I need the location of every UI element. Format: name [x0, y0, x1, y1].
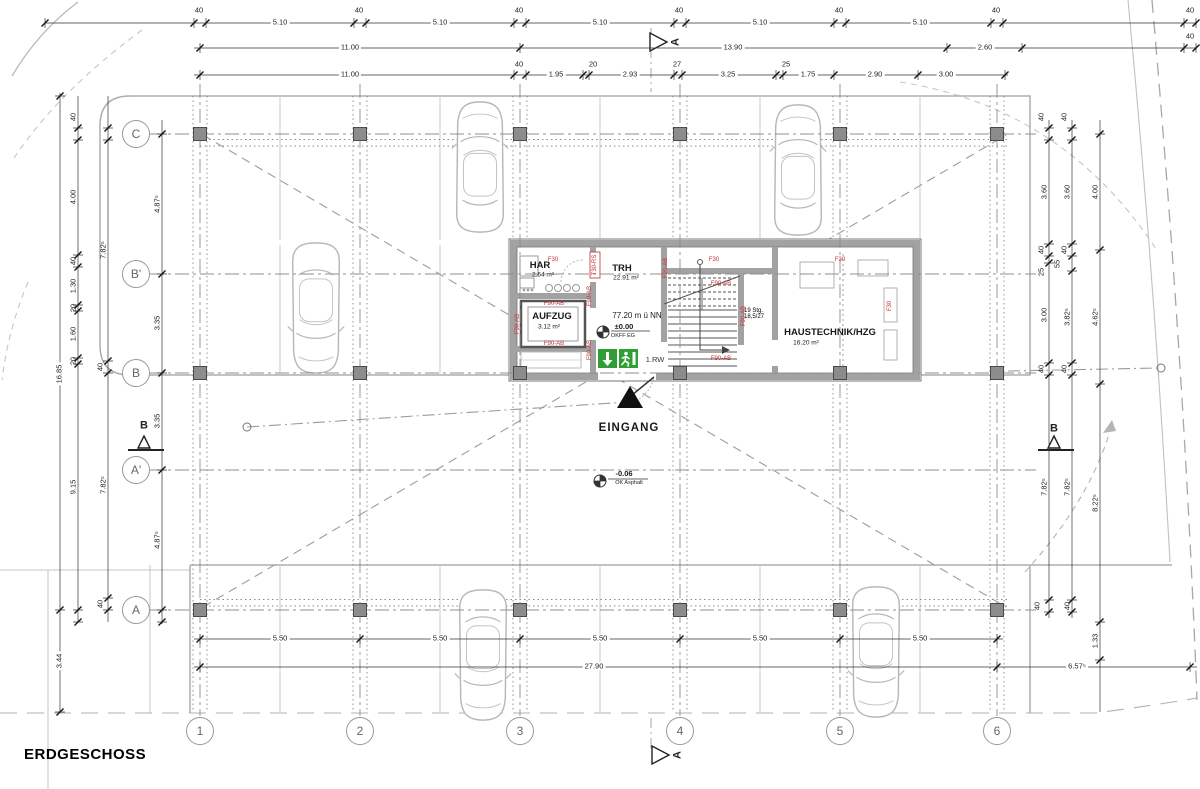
exit-sign	[598, 349, 638, 368]
dim-label: 5.10	[431, 18, 450, 26]
dim-label: 5.10	[591, 18, 610, 26]
dim-label: 8.22⁵	[1091, 494, 1099, 512]
section-letter: B	[140, 421, 148, 432]
altitude-label: 77.20 m ü NN	[612, 312, 661, 320]
dim-label: 2.60	[976, 43, 995, 51]
dim-label: 5.50	[271, 634, 290, 642]
column-marker	[514, 128, 527, 141]
fire-rating-label: F30	[835, 257, 845, 263]
room-area-har: 2.64 m²	[532, 273, 554, 280]
dim-label: 25	[782, 60, 790, 68]
dim-label: 40	[1033, 602, 1041, 610]
dim-label: 2.90	[866, 70, 885, 78]
section-letter: B	[1050, 424, 1058, 435]
dim-label: 40	[1060, 246, 1068, 254]
dim-label: 5.50	[431, 634, 450, 642]
dim-label: 4.62⁵	[1091, 308, 1099, 326]
floor-plan-drawing	[0, 0, 1200, 789]
fire-rating-label: F30	[709, 257, 719, 263]
column-marker	[674, 604, 687, 617]
site-context-lines	[0, 0, 1197, 789]
structural-grid-lines	[150, 84, 1036, 716]
grid-bubble-row-C: C	[122, 120, 150, 148]
dim-label: 40	[1037, 113, 1045, 121]
dim-label: 40	[835, 6, 843, 14]
exit-arrow-icon	[598, 349, 617, 368]
plan-markers	[128, 33, 1074, 764]
dim-label: 40	[69, 257, 77, 265]
fire-rating-label: F90-AB	[741, 306, 747, 326]
dim-label: 40	[515, 60, 523, 68]
fire-rating-label: F90-AB	[515, 314, 521, 334]
dim-label: 40	[1037, 246, 1045, 254]
dim-label: 4.00	[1091, 185, 1099, 200]
dim-label: 40	[1060, 113, 1068, 121]
escape-route-label: 1.RW	[646, 356, 665, 364]
column-marker	[354, 128, 367, 141]
dim-label: 5.50	[591, 634, 610, 642]
dim-label: 1.60	[69, 327, 77, 342]
dim-label: 40	[1063, 602, 1071, 610]
fire-rating-label: F30	[887, 301, 893, 311]
section-marker-b-left-icon	[138, 436, 150, 448]
dim-label: 40	[69, 113, 77, 121]
column-marker	[834, 128, 847, 141]
column-marker	[514, 604, 527, 617]
dim-label: 1.33	[1091, 634, 1099, 649]
fire-rating-label: F90-AB	[544, 341, 564, 347]
entrance-door-opening	[598, 367, 656, 380]
dim-label: 20	[69, 357, 77, 365]
level-outdoor-ref: OK Asphalt	[615, 481, 643, 487]
section-marker-a-bottom-icon	[652, 746, 669, 764]
dim-label: 2.93	[621, 70, 640, 78]
dim-label: 40	[1186, 6, 1194, 14]
section-marker-b-right-icon	[1048, 436, 1060, 448]
stair-note-line2: 18,5/27	[744, 314, 764, 320]
fire-rating-label: F90-AB	[587, 340, 593, 360]
room-area-aufzug: 3.12 m²	[538, 325, 560, 332]
dim-label: 4.87⁵	[153, 195, 161, 213]
dim-label: 11.00	[339, 43, 361, 51]
car-icon	[455, 590, 511, 720]
dim-label: 1.95	[547, 70, 566, 78]
dim-label: 3.35	[153, 316, 161, 331]
dim-label: 5.50	[911, 634, 930, 642]
dim-label: 40	[96, 363, 104, 371]
grid-bubble-row-A: A	[122, 596, 150, 624]
parked-cars	[288, 102, 904, 720]
dim-label: 3.00	[1040, 308, 1048, 323]
dim-label: 3.60	[1040, 185, 1048, 200]
level-outdoor-value: -0.06	[615, 470, 632, 478]
grid-bubble-column-3: 3	[506, 717, 534, 745]
dim-label: 3.82⁵	[1063, 308, 1071, 326]
fire-rating-label: F90-AB	[544, 301, 564, 307]
stair-note: 19 Stg. 18,5/27	[744, 308, 764, 320]
dim-label: 40	[96, 600, 104, 608]
dim-label: 20	[69, 304, 77, 312]
column-marker	[834, 604, 847, 617]
column-marker	[194, 367, 207, 380]
car-icon	[848, 587, 904, 717]
dim-label: 1.75	[799, 70, 818, 78]
fire-rating-label: F90-AB	[711, 281, 731, 287]
room-name-trh: TRH	[612, 264, 632, 274]
section-letter: A	[673, 751, 684, 759]
dim-label: 5.10	[751, 18, 770, 26]
dim-label: 7.82⁵	[1063, 478, 1071, 496]
dim-label: 40	[1060, 365, 1068, 373]
dim-label: 5.10	[911, 18, 930, 26]
column-marker	[194, 128, 207, 141]
grid-bubble-row-B: B	[122, 359, 150, 387]
dim-label: 20	[589, 60, 597, 68]
fire-rating-label: F90-AB	[711, 356, 731, 362]
dim-label: 40	[1186, 32, 1194, 40]
floor-plan-page: HAR 2.64 m² AUFZUG 3.12 m² TRH 22.91 m² …	[0, 0, 1200, 789]
dim-label: 40	[675, 6, 683, 14]
dim-label: 5.10	[271, 18, 290, 26]
column-marker	[194, 604, 207, 617]
dim-label: 40	[195, 6, 203, 14]
section-letter: A	[671, 38, 682, 46]
grid-bubble-column-4: 4	[666, 717, 694, 745]
fire-rating-label: T30-RS	[592, 255, 598, 276]
exit-running-man-icon	[619, 349, 638, 368]
dim-label: 16.85	[55, 363, 63, 386]
dim-label: 3.60	[1063, 185, 1071, 200]
dim-label: 40	[992, 6, 1000, 14]
fire-rating-label: F30	[548, 257, 558, 263]
dim-label: 3.25	[719, 70, 738, 78]
column-marker	[834, 367, 847, 380]
column-marker	[514, 367, 527, 380]
entrance-label: EINGANG	[599, 422, 660, 434]
dim-label: 25	[1037, 268, 1045, 276]
dim-label: 5.50	[751, 634, 770, 642]
dim-label: 3.35	[153, 414, 161, 429]
page-title: ERDGESCHOSS	[24, 746, 146, 763]
column-marker	[991, 367, 1004, 380]
dim-label: 11.00	[339, 70, 361, 78]
room-name-haustechnik: HAUSTECHNIK/HZG	[784, 328, 876, 338]
room-area-haustechnik: 16.20 m²	[793, 341, 819, 348]
dim-label: 4.87⁵	[153, 531, 161, 549]
dim-label: 1.30	[69, 279, 77, 294]
fire-rating-label: F90-AB	[587, 286, 593, 306]
column-marker	[674, 367, 687, 380]
grid-bubble-row-Ap: A'	[122, 456, 150, 484]
grid-bubble-column-2: 2	[346, 717, 374, 745]
column-marker	[354, 604, 367, 617]
grid-bubble-column-1: 1	[186, 717, 214, 745]
dim-label: 27	[673, 60, 681, 68]
dim-label: 6.57⁵	[1066, 662, 1088, 670]
room-area-trh: 22.91 m²	[613, 276, 639, 283]
room-name-aufzug: AUFZUG	[532, 312, 572, 322]
dim-label: 4.00	[69, 190, 77, 205]
dim-label: 3.44	[55, 652, 63, 671]
grid-bubble-column-6: 6	[983, 717, 1011, 745]
dim-label: 9.15	[69, 480, 77, 495]
dim-label: 40	[515, 6, 523, 14]
column-marker	[674, 128, 687, 141]
dim-label: 13.90	[722, 43, 745, 51]
car-icon	[452, 102, 508, 232]
car-icon	[288, 243, 344, 373]
column-marker	[991, 128, 1004, 141]
column-marker	[354, 367, 367, 380]
car-icon	[770, 105, 826, 235]
dim-label: 3.00	[937, 70, 956, 78]
dim-label: 7.82⁵	[99, 476, 107, 494]
level-indoor-ref: OKFF EG	[611, 334, 635, 340]
column-marker	[991, 604, 1004, 617]
dim-label: 40	[355, 6, 363, 14]
grid-bubble-column-5: 5	[826, 717, 854, 745]
dim-label: 27.90	[583, 662, 606, 670]
dim-label: 40	[1037, 365, 1045, 373]
level-indoor-value: ±0.00	[615, 323, 634, 331]
fire-rating-label: F90-AB	[663, 258, 669, 278]
dim-label: 7.82⁵	[99, 241, 107, 259]
grid-bubble-row-Bp: B'	[122, 260, 150, 288]
dim-label: 55	[1053, 260, 1061, 268]
dim-label: 7.82⁵	[1040, 478, 1048, 496]
